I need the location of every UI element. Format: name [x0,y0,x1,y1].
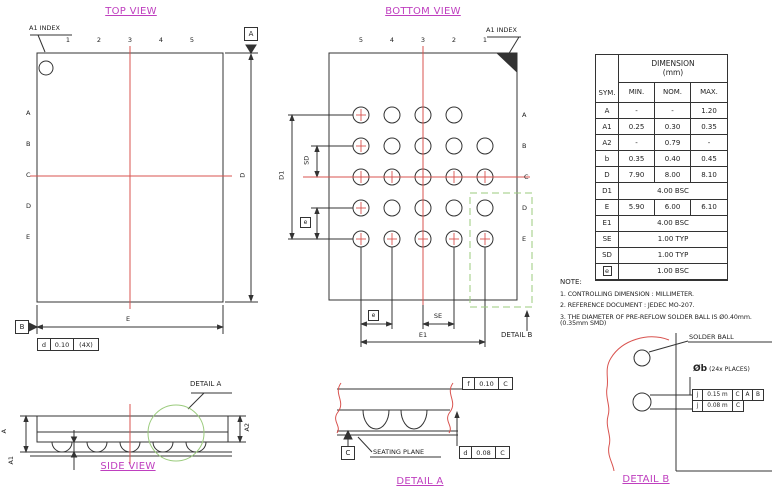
dim-se-label: SE [430,313,446,320]
fcf-tolerance: 0.08 m [703,401,733,411]
coplanarity-fcf: d 0.10 (4X) [37,338,99,351]
top-row-label: E [26,234,30,241]
pitch-e-box: e [368,310,379,321]
position-symbol: j [693,390,703,400]
bottom-row-label: D [522,205,527,212]
fcf-note: (4X) [74,339,98,350]
bottom-view-title: BOTTOM VIEW [378,6,468,17]
solder-ball-upper [634,350,650,366]
table-value-cell: 0.40 [655,151,691,167]
table-value-cell: 6.00 [655,200,691,216]
detail-a-callout: DETAIL A [190,381,221,388]
detail-b-callout: DETAIL B [501,332,532,339]
fcf-datum: C [733,390,743,400]
table-value-cell: 0.30 [655,119,691,135]
table-sym-cell: b [596,151,619,167]
top-col-label: 4 [156,37,166,44]
bottom-row-label: A [522,112,526,119]
datum-c-flag: C [341,446,355,460]
top-col-label: 2 [94,37,104,44]
ball-diameter-label: Øb (24x PLACES) [693,365,750,374]
table-sym-cell: E [596,200,619,216]
dim-d1-label: D1 [278,171,285,180]
notes-block: NOTE: 1. CONTROLLING DIMENSION : MILLIME… [560,279,774,332]
parallelism-fcf: f 0.10 C [462,377,513,390]
side-view-outline [20,393,246,470]
fcf-datum: C [496,447,509,458]
break-line [448,383,453,433]
a1-index-circle [39,61,53,75]
table-value-cell: 0.35 [691,119,727,135]
top-row-label: D [26,203,31,210]
detail-a-outline [337,389,462,457]
dim-e-label: E [126,316,130,323]
pitch-e-box: e [300,217,311,228]
table-value-cell: 1.00 BSC [619,264,727,280]
table-sym-cell: A1 [596,119,619,135]
solder-ball [446,107,462,123]
solder-ball [384,138,400,154]
table-value-cell: 1.00 TYP [619,232,727,248]
dimension-unit-text: (mm) [663,69,683,78]
top-col-label: 1 [63,37,73,44]
table-value-cell: - [619,135,655,151]
note-item: 3. THE DIAMETER OF PRE-REFLOW SOLDER BAL… [560,315,774,328]
table-value-cell: 0.35 [619,151,655,167]
seating-plane-label: SEATING PLANE [373,449,424,456]
bottom-col-label: 3 [418,37,428,44]
table-sym-cell: A2 [596,135,619,151]
table-value-cell: 1.00 TYP [619,248,727,264]
table-nom-header: NOM. [655,83,691,103]
table-sym-cell: e [596,264,619,280]
dim-a1-label: A1 [8,456,15,465]
top-row-label: B [26,141,30,148]
table-value-cell: 0.79 [655,135,691,151]
centerlines [30,46,669,471]
table-sym-cell: D [596,167,619,183]
package-outline-drawing: TOP VIEW BOTTOM VIEW SIDE VIEW DETAIL A … [0,0,774,496]
fcf-tolerance: 0.15 m [703,390,733,400]
detail-a-title: DETAIL A [380,476,460,487]
dimension-table: SYM. DIMENSION (mm) MIN. NOM. MAX. A--1.… [595,54,728,281]
fcf-datum: C [733,401,743,411]
table-value-cell: 4.00 BSC [619,183,727,199]
dim-d-label: D [239,173,246,178]
fcf-tolerance: 0.08 [472,447,496,458]
solder-ball-lower [633,393,651,411]
fcf-datum: B [753,390,763,400]
bottom-row-label: E [522,236,526,243]
fcf-symbol: d [460,447,472,458]
table-value-cell: 6.10 [691,200,727,216]
bottom-a1-index-label: A1 INDEX [486,27,517,34]
dim-sd-label: SD [303,156,310,165]
notes-title: NOTE: [560,279,774,286]
table-sym-cell: A [596,103,619,119]
solder-ball-label: SOLDER BALL [689,334,734,341]
detail-b-title: DETAIL B [610,474,682,485]
bottom-row-label: B [522,143,526,150]
table-dimension-header: DIMENSION (mm) [619,55,727,83]
fcf-datum: A [743,390,753,400]
break-line [607,337,669,471]
dim-a2-label: A2 [244,423,251,432]
datum-b-flag: B [15,320,29,334]
dim-a-label: A [1,429,8,433]
table-sym-cell: SE [596,232,619,248]
fcf-tolerance: 0.10 [475,378,499,389]
solder-ball [446,200,462,216]
table-value-cell: 7.90 [619,167,655,183]
table-value-cell: - [619,103,655,119]
bottom-col-label: 2 [449,37,459,44]
side-view-title: SIDE VIEW [88,461,168,472]
solder-ball [384,200,400,216]
datum-a-triangle [246,45,256,53]
table-min-header: MIN. [619,83,655,103]
ball-position-fcf-2: j 0.08 m C [692,400,744,412]
fcf-datum: C [499,378,512,389]
solder-ball [384,107,400,123]
table-value-cell: 4.00 BSC [619,216,727,232]
bottom-col-label: 4 [387,37,397,44]
solder-ball [477,200,493,216]
note-item: 1. CONTROLLING DIMENSION : MILLIMETER. [560,292,774,298]
diameter-symbol: Øb [693,364,707,374]
places-note: (24x PLACES) [709,366,750,373]
fcf-tolerance: 0.10 [51,339,74,350]
bottom-row-label: C [524,174,529,181]
table-sym-cell: D1 [596,183,619,199]
table-value-cell: - [655,103,691,119]
table-value-cell: 8.00 [655,167,691,183]
bottom-col-label: 1 [480,37,490,44]
table-value-cell: 8.10 [691,167,727,183]
top-col-label: 3 [125,37,135,44]
table-sym-header: SYM. [596,55,619,103]
table-value-cell: 1.20 [691,103,727,119]
table-value-cell: 0.25 [619,119,655,135]
table-value-cell: 0.45 [691,151,727,167]
table-value-cell: - [691,135,727,151]
bottom-view-outline [288,37,527,347]
bottom-col-label: 5 [356,37,366,44]
top-view-outline [29,35,258,334]
detail-a-region [148,405,204,461]
top-col-label: 5 [187,37,197,44]
top-a1-index-label: A1 INDEX [29,25,60,32]
datum-a-flag: A [244,27,258,41]
top-row-label: C [26,172,31,179]
table-sym-cell: SD [596,248,619,264]
fcf-symbol: d [38,339,51,350]
table-value-cell: 5.90 [619,200,655,216]
table-sym-cell: E1 [596,216,619,232]
dim-e1-label: E1 [415,332,431,339]
solder-ball [477,138,493,154]
datum-b-triangle [29,323,37,331]
top-row-label: A [26,110,30,117]
top-view-title: TOP VIEW [94,6,168,17]
solder-ball [446,138,462,154]
seating-plane-fcf: d 0.08 C [459,446,510,459]
fcf-symbol: f [463,378,475,389]
break-line [336,383,341,433]
table-max-header: MAX. [691,83,727,103]
note-item: 2. REFERENCE DOCUMENT : JEDEC MO-207. [560,303,774,309]
position-symbol: j [693,401,703,411]
